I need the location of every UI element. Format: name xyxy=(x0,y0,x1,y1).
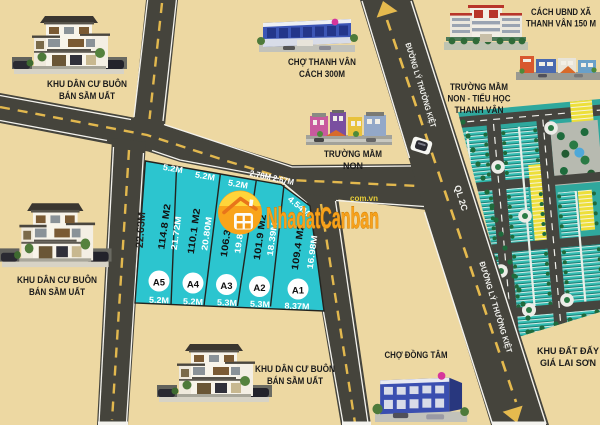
svg-text:5.2M: 5.2M xyxy=(149,295,169,306)
svg-text:A4: A4 xyxy=(187,280,200,291)
svg-text:NON: NON xyxy=(343,161,363,172)
svg-text:KHU ĐẤT ĐẤY: KHU ĐẤT ĐẤY xyxy=(537,346,600,357)
svg-text:CÁCH UBND XÃ: CÁCH UBND XÃ xyxy=(531,7,591,18)
svg-text:A5: A5 xyxy=(153,278,166,289)
svg-text:A1: A1 xyxy=(292,286,305,297)
svg-text:NhadatCanban: NhadatCanban xyxy=(266,202,379,235)
svg-text:5.3M: 5.3M xyxy=(250,299,270,310)
svg-text:8.37M: 8.37M xyxy=(284,301,309,312)
svg-text:GIÁ LAI SƠN: GIÁ LAI SƠN xyxy=(540,358,596,369)
svg-text:A2: A2 xyxy=(253,283,265,294)
svg-text:CHỢ THANH VÂN: CHỢ THANH VÂN xyxy=(288,56,356,68)
svg-text:TRƯỜNG MẦM: TRƯỜNG MẦM xyxy=(324,148,382,160)
svg-text:CÁCH 300M: CÁCH 300M xyxy=(299,69,345,80)
svg-text:22.63M: 22.63M xyxy=(134,211,148,248)
svg-text:5.3M: 5.3M xyxy=(217,297,237,308)
svg-text:THANH VÂN 150 M: THANH VÂN 150 M xyxy=(526,18,596,30)
svg-text:com.vn: com.vn xyxy=(350,194,378,203)
svg-text:CHỢ ĐỒNG TÂM: CHỢ ĐỒNG TÂM xyxy=(385,349,448,361)
svg-text:BÁN SẦM UẤT: BÁN SẦM UẤT xyxy=(29,287,85,298)
svg-text:TRƯỜNG MẦM: TRƯỜNG MẦM xyxy=(450,81,508,93)
svg-text:BÁN SẦM UẤT: BÁN SẦM UẤT xyxy=(59,91,115,102)
svg-text:NON - TIỂU HỌC: NON - TIỂU HỌC xyxy=(448,93,511,105)
svg-text:KHU DÂN CƯ BUÔN: KHU DÂN CƯ BUÔN xyxy=(47,78,127,90)
svg-text:5.2M: 5.2M xyxy=(183,296,203,307)
svg-text:KHU DÂN CƯ BUÔN: KHU DÂN CƯ BUÔN xyxy=(255,363,335,375)
svg-text:A3: A3 xyxy=(220,281,232,292)
svg-text:THANH VÂN: THANH VÂN xyxy=(455,104,504,116)
svg-text:KHU DÂN CƯ BUÔN: KHU DÂN CƯ BUÔN xyxy=(17,274,97,286)
svg-text:BÁN SẦM UẤT: BÁN SẦM UẤT xyxy=(267,376,323,387)
